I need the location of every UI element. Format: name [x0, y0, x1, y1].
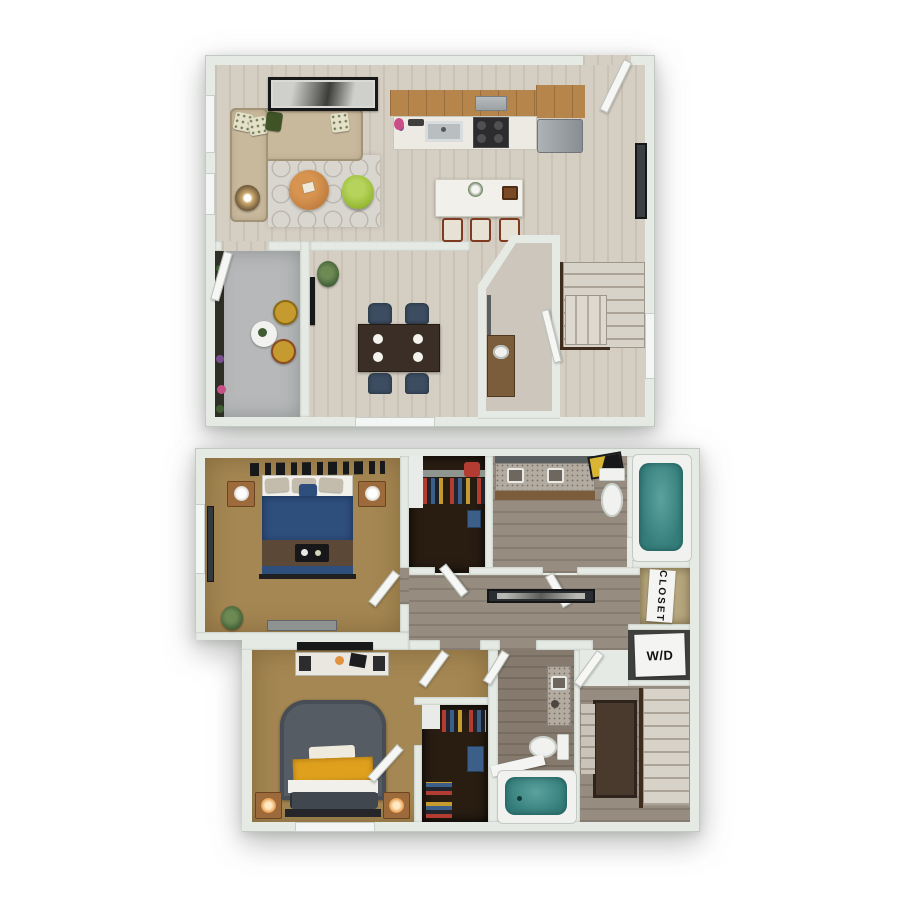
hallway-wall-art — [487, 589, 595, 603]
wall-segment — [469, 567, 543, 575]
plate-icon — [413, 352, 423, 362]
lit-table-lamp-icon — [261, 798, 276, 813]
closet2-shelf — [422, 705, 440, 729]
lit-table-lamp-icon — [389, 798, 404, 813]
bathtub — [639, 463, 683, 551]
wall-segment — [300, 241, 310, 417]
living-room-wall-art — [268, 77, 378, 111]
plate-icon — [373, 334, 383, 344]
table-lamp-icon — [365, 486, 380, 501]
hallway-art-canvas — [497, 593, 585, 599]
bathroom1-mirror — [495, 456, 593, 463]
balcony-chair — [271, 339, 296, 364]
wall-segment — [414, 697, 488, 705]
plate-icon — [413, 334, 423, 344]
console-bowl-icon — [335, 656, 344, 665]
staircase-down-treads — [643, 688, 690, 806]
bedroom1-dresser — [267, 620, 337, 631]
dining-wall-tv — [310, 277, 315, 325]
speaker-icon — [299, 656, 311, 671]
throw-pillow — [330, 112, 350, 133]
bed1-duvet — [262, 496, 353, 542]
balcony-chair — [273, 300, 298, 325]
vanity-sink — [551, 676, 567, 690]
closet-label: CLOSET — [654, 569, 669, 622]
staircase-winders — [581, 704, 595, 774]
hanging-clothes — [442, 710, 486, 732]
stair-railing — [639, 688, 643, 808]
bathroom2-vanity — [547, 666, 571, 726]
bed2-headboard — [285, 809, 381, 817]
backpack-icon — [464, 462, 480, 477]
powder-sink — [493, 345, 509, 359]
window — [355, 417, 435, 427]
vanity-sink — [507, 468, 524, 483]
potted-plant-icon — [317, 261, 339, 287]
hallway-floor — [405, 575, 640, 650]
purple-flowers-icon — [216, 355, 224, 363]
potted-plant-icon — [221, 606, 243, 630]
first-floor-outer-walls — [205, 55, 655, 427]
green-accent-chair — [342, 175, 374, 209]
wall-segment — [310, 241, 470, 251]
balcony-door-threshold — [222, 241, 268, 251]
burner-icon — [477, 121, 486, 130]
wall-segment — [414, 745, 422, 822]
entry-wall-art — [635, 143, 647, 219]
bed1-footboard — [259, 574, 356, 579]
counter-jars-icon — [408, 119, 424, 126]
second-floor-outer-walls: CLOSET W/D — [195, 448, 700, 832]
burner-icon — [477, 134, 486, 143]
window — [295, 822, 375, 832]
tub-drain-icon — [517, 796, 522, 801]
wall-segment — [409, 640, 440, 650]
window — [645, 313, 655, 379]
island-tray-icon — [502, 186, 518, 200]
washer-dryer-label: W/D — [646, 647, 673, 663]
wall-segment — [485, 456, 493, 575]
wall-segment — [577, 567, 640, 575]
counter-flower-vase-icon — [394, 118, 404, 130]
toilet-tank — [599, 468, 625, 481]
wall-segment — [215, 241, 222, 251]
bar-stool — [442, 218, 463, 242]
stair-railing — [560, 262, 563, 350]
stair-railing — [560, 347, 610, 350]
dining-chair — [368, 373, 392, 394]
dining-chair — [368, 303, 392, 324]
floor-plan-canvas: CLOSET W/D — [0, 0, 900, 900]
bed1-pillow — [265, 477, 290, 493]
bed1-foot — [262, 566, 353, 574]
bedroom1-door-threshold — [400, 568, 409, 604]
second-floor-plan: CLOSET W/D — [195, 448, 700, 832]
wall-segment — [628, 680, 690, 686]
speaker-icon — [373, 656, 385, 671]
wall-segment — [409, 567, 435, 575]
vanity-sink — [547, 468, 564, 483]
table-lamp-icon — [234, 486, 249, 501]
staircase-lower-winders — [565, 295, 607, 345]
vanity-cabinet — [495, 491, 595, 500]
floor-lamp — [235, 185, 260, 211]
faucet-icon — [441, 127, 446, 132]
closet-label-board: CLOSET — [646, 569, 676, 623]
tray-plate-icon — [301, 549, 308, 556]
hanging-clothes — [423, 478, 485, 504]
range-hood — [475, 96, 507, 111]
folded-jeans-icon — [467, 746, 484, 772]
bistro-table-plant-icon — [258, 328, 267, 337]
stair-void-panel — [593, 700, 637, 798]
burner-icon — [494, 134, 503, 143]
wall-segment — [400, 604, 409, 632]
planter-greenery-icon — [216, 405, 224, 413]
bed1-pillow — [319, 477, 344, 493]
first-floor-plan — [205, 55, 655, 427]
toilet-tank — [557, 734, 569, 760]
tray-cup-icon — [315, 550, 321, 556]
wall-segment — [400, 456, 409, 568]
refrigerator — [537, 119, 583, 153]
toilet-bowl — [601, 483, 623, 517]
bedroom1-wall-art — [207, 506, 214, 582]
console-keyboard-icon — [349, 653, 367, 669]
wall-segment — [480, 640, 500, 650]
dining-table — [358, 324, 440, 372]
burner-icon — [494, 121, 503, 130]
powder-room — [475, 233, 563, 419]
dining-chair — [405, 373, 429, 394]
throw-pillow — [265, 111, 283, 132]
window — [205, 173, 215, 215]
dining-chair — [405, 303, 429, 324]
closet1-cabinet — [409, 456, 423, 508]
window — [195, 504, 205, 574]
island-centerpiece-icon — [468, 182, 483, 197]
bed2-pillows — [290, 792, 378, 809]
washer-dryer-unit: W/D — [634, 633, 685, 677]
bathtub — [505, 777, 567, 815]
bedroom2-wall-tv — [297, 642, 373, 650]
kitchen-tall-cabinet — [536, 85, 585, 118]
kitchen-upper-cabinets — [390, 90, 536, 116]
window — [205, 95, 215, 153]
soap-dish-icon — [551, 700, 559, 708]
wall-segment — [536, 640, 593, 650]
pink-flowers-icon — [217, 385, 226, 394]
plate-icon — [373, 352, 383, 362]
headboard-decor — [250, 461, 385, 476]
hanging-clothes — [426, 782, 452, 818]
folded-jeans-icon — [467, 510, 481, 528]
